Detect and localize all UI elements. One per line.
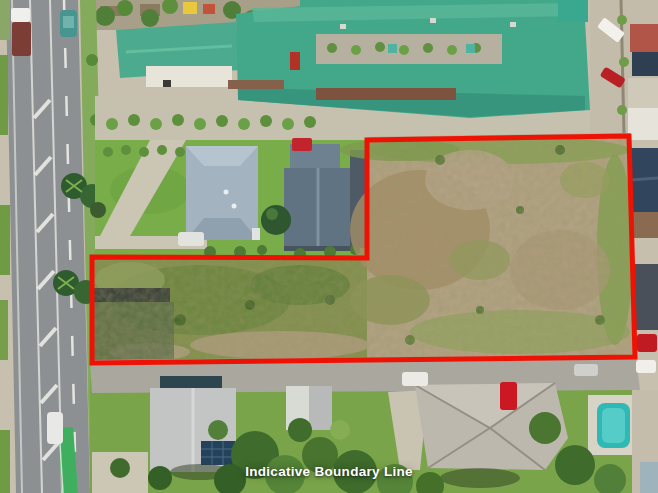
teal-car-roof bbox=[63, 16, 74, 28]
red-car-parked bbox=[637, 334, 657, 352]
aerial-photo-frame: Indicative Boundary Line bbox=[0, 0, 658, 493]
red-door bbox=[290, 52, 300, 70]
aerial-photo bbox=[0, 0, 658, 493]
main-road bbox=[6, 0, 90, 493]
red-play-equipment bbox=[203, 4, 215, 14]
silver-car-street bbox=[574, 364, 598, 376]
front-properties-notch bbox=[90, 138, 367, 260]
truck bbox=[11, 8, 31, 56]
red-car-house-two bbox=[292, 138, 312, 151]
white-car-street-2 bbox=[636, 360, 656, 373]
house-one bbox=[186, 146, 260, 240]
school-white-wall bbox=[146, 66, 232, 87]
pool-area bbox=[588, 395, 638, 455]
red-car-house-c bbox=[500, 382, 517, 410]
white-car-street bbox=[402, 372, 428, 386]
caption-indicative-boundary-line: Indicative Boundary Line bbox=[0, 464, 658, 479]
white-car-road bbox=[47, 412, 63, 444]
white-vehicle-driveway bbox=[178, 232, 204, 246]
garden-tree bbox=[261, 205, 291, 235]
yellow-play-equipment bbox=[183, 2, 197, 14]
covered-walkway bbox=[316, 88, 456, 100]
solar-panels bbox=[201, 441, 235, 465]
